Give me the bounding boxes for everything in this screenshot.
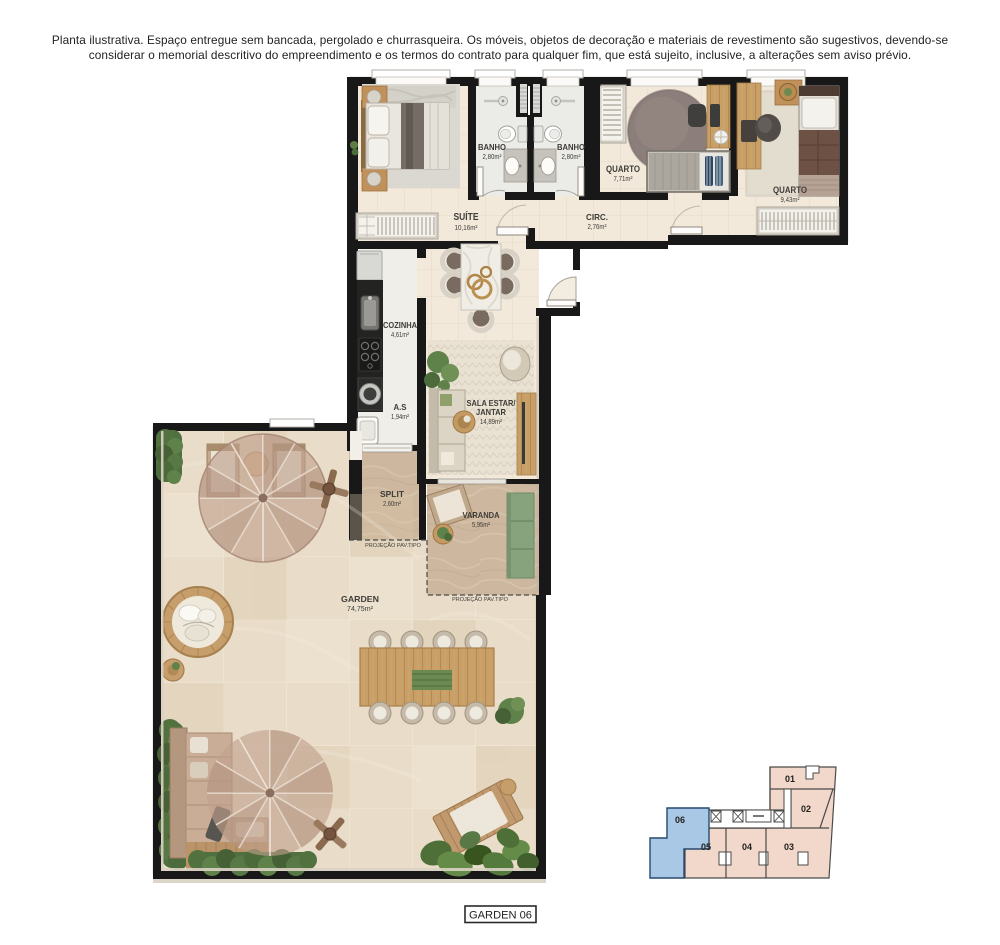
- svg-text:01: 01: [785, 774, 795, 784]
- svg-text:06: 06: [675, 815, 685, 825]
- svg-text:03: 03: [784, 842, 794, 852]
- svg-text:VARANDA: VARANDA: [463, 510, 500, 520]
- svg-text:2,76m²: 2,76m²: [588, 222, 607, 231]
- svg-text:2,60m²: 2,60m²: [383, 501, 402, 508]
- svg-text:7,71m²: 7,71m²: [614, 174, 633, 183]
- svg-text:2,80m²: 2,80m²: [562, 154, 582, 161]
- svg-text:CIRC.: CIRC.: [586, 212, 608, 222]
- svg-text:PROJEÇÃO PAV.TIPO: PROJEÇÃO PAV.TIPO: [365, 542, 422, 549]
- svg-text:GARDEN 06: GARDEN 06: [469, 909, 532, 921]
- svg-text:5,95m²: 5,95m²: [472, 522, 491, 529]
- svg-text:02: 02: [801, 804, 811, 814]
- svg-text:05: 05: [701, 842, 711, 852]
- svg-text:SUÍTE: SUÍTE: [454, 210, 479, 223]
- svg-text:COZINHA: COZINHA: [383, 320, 417, 330]
- svg-text:74,75m²: 74,75m²: [347, 606, 374, 613]
- svg-text:A.S: A.S: [394, 402, 407, 412]
- svg-text:JANTAR: JANTAR: [476, 407, 506, 417]
- svg-text:14,89m²: 14,89m²: [480, 419, 503, 426]
- svg-text:SPLIT: SPLIT: [380, 489, 405, 499]
- svg-text:BANHO: BANHO: [478, 142, 506, 152]
- svg-text:GARDEN: GARDEN: [341, 594, 379, 604]
- svg-text:PROJEÇÃO PAV.TIPO: PROJEÇÃO PAV.TIPO: [452, 596, 509, 603]
- svg-text:04: 04: [742, 842, 752, 852]
- svg-text:1,94m²: 1,94m²: [391, 414, 410, 421]
- svg-text:2,80m²: 2,80m²: [483, 154, 503, 161]
- svg-text:BANHO: BANHO: [557, 142, 585, 152]
- svg-text:4,61m²: 4,61m²: [391, 332, 410, 339]
- svg-text:10,16m²: 10,16m²: [455, 223, 478, 232]
- svg-text:9,43m²: 9,43m²: [781, 195, 800, 204]
